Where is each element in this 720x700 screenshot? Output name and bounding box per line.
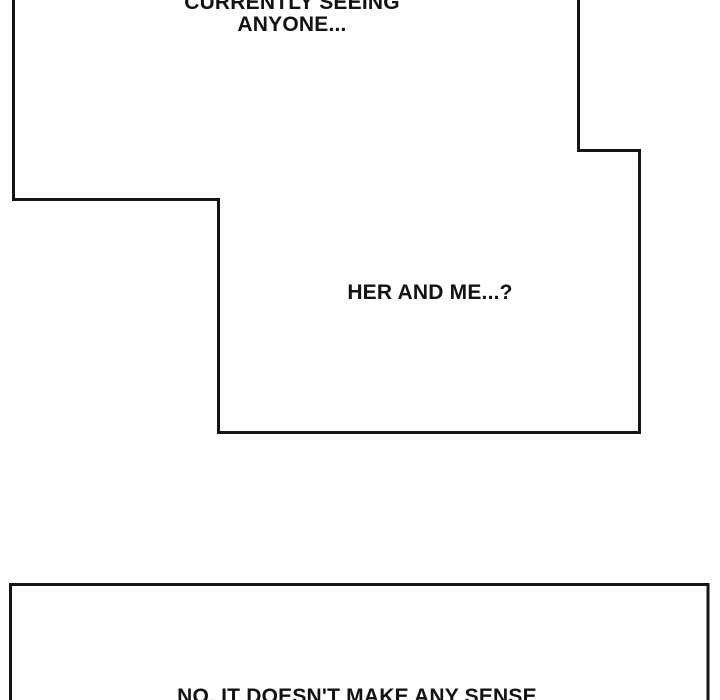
top-panel-border [14, 0, 640, 433]
speech-line: CURRENTLY SEEING [132, 0, 452, 14]
comic-page: CURRENTLY SEEING ANYONE... HER AND ME...… [0, 0, 720, 700]
speech-text-her-and-me: HER AND ME...? [330, 282, 530, 304]
panel-borders [0, 0, 720, 700]
speech-line: ANYONE... [132, 14, 452, 36]
speech-text-currently-seeing: CURRENTLY SEEING ANYONE... [132, 0, 452, 36]
bottom-panel-border [11, 585, 709, 700]
speech-text-no-sense: NO, IT DOESN'T MAKE ANY SENSE [157, 686, 557, 700]
